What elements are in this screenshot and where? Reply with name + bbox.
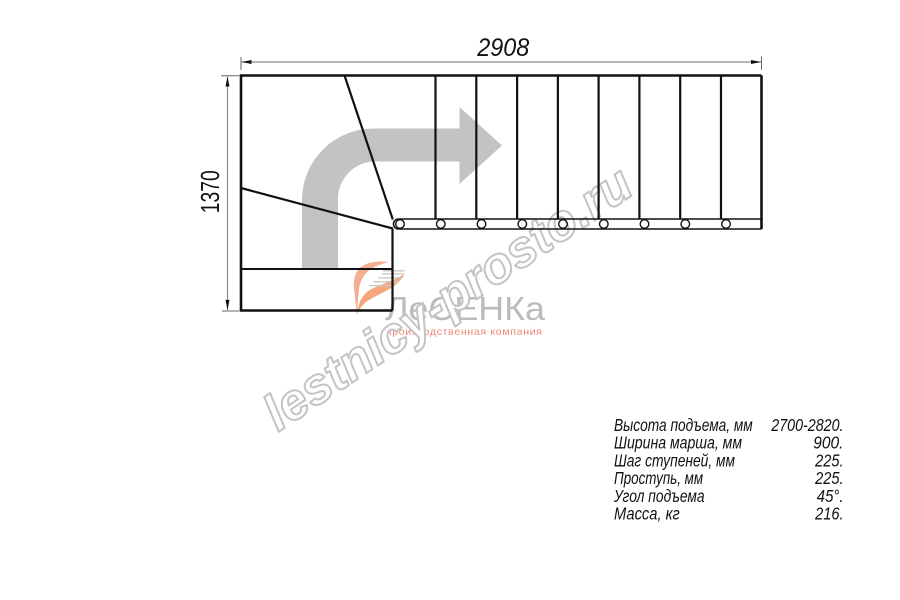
svg-text:216.: 216. [814, 504, 843, 524]
svg-text:Масса, кг: Масса, кг [614, 504, 680, 524]
svg-text:2908: 2908 [476, 34, 529, 62]
svg-text:1370: 1370 [195, 170, 225, 213]
